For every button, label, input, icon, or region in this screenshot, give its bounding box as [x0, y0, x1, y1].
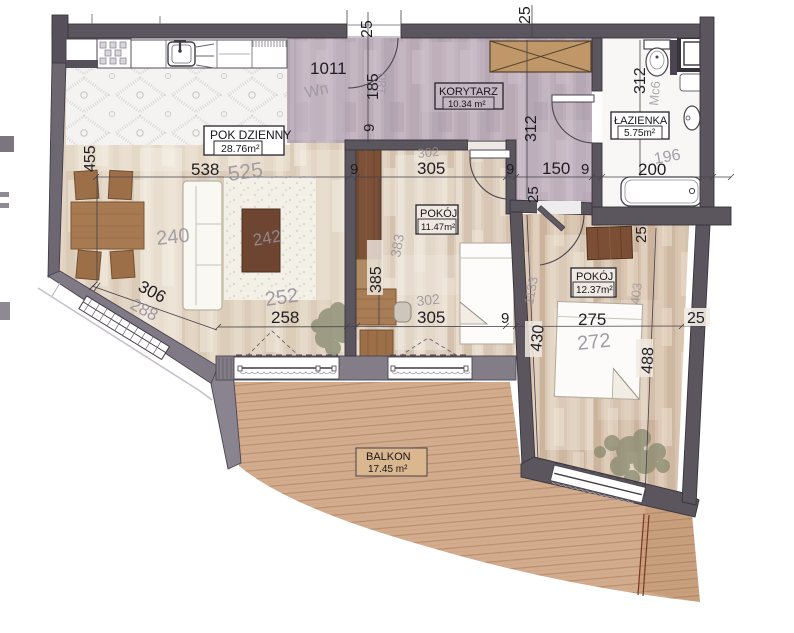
svg-text:17.45 m²: 17.45 m² — [368, 464, 408, 475]
svg-text:302: 302 — [416, 291, 441, 309]
svg-text:150: 150 — [542, 159, 570, 178]
svg-text:11.47m²: 11.47m² — [421, 222, 455, 233]
svg-text:POK DZIENNY: POK DZIENNY — [210, 128, 291, 142]
svg-text:25: 25 — [517, 6, 534, 24]
svg-text:POKÓJ: POKÓJ — [420, 207, 457, 220]
svg-text:272: 272 — [576, 330, 611, 355]
svg-text:10.34 m²: 10.34 m² — [448, 99, 486, 110]
svg-text:POKÓJ: POKÓJ — [576, 270, 613, 283]
svg-text:275: 275 — [578, 310, 606, 329]
svg-text:9: 9 — [350, 161, 358, 178]
svg-text:KORYTARZ: KORYTARZ — [439, 86, 498, 98]
svg-text:312: 312 — [523, 115, 540, 142]
svg-text:Mc6: Mc6 — [646, 80, 663, 106]
svg-text:305: 305 — [417, 308, 445, 327]
svg-text:9: 9 — [361, 124, 378, 132]
svg-text:525: 525 — [226, 158, 264, 186]
svg-text:385: 385 — [368, 266, 385, 293]
svg-text:430: 430 — [528, 324, 548, 352]
svg-text:9: 9 — [506, 161, 514, 178]
svg-text:ŁAZIENKA: ŁAZIENKA — [614, 115, 668, 127]
svg-text:9: 9 — [501, 310, 509, 327]
svg-text:12.37m²: 12.37m² — [576, 285, 613, 296]
svg-text:455: 455 — [82, 145, 99, 172]
svg-text:25: 25 — [525, 186, 542, 203]
svg-text:258: 258 — [271, 308, 299, 327]
svg-text:302: 302 — [417, 144, 440, 161]
svg-text:25: 25 — [359, 20, 376, 38]
svg-text:1011: 1011 — [310, 59, 347, 78]
svg-text:403: 403 — [627, 282, 645, 306]
svg-text:305: 305 — [417, 159, 445, 178]
svg-text:9: 9 — [581, 161, 589, 178]
svg-text:252: 252 — [264, 285, 300, 311]
svg-text:5.75m²: 5.75m² — [624, 128, 656, 139]
svg-text:25: 25 — [633, 226, 650, 243]
svg-text:BALKON: BALKON — [366, 451, 411, 463]
svg-text:180: 180 — [373, 72, 390, 95]
svg-text:240: 240 — [155, 225, 190, 250]
svg-text:538: 538 — [191, 160, 219, 179]
svg-text:25: 25 — [687, 310, 705, 327]
svg-text:488: 488 — [639, 347, 657, 375]
svg-text:28.76m²: 28.76m² — [221, 143, 260, 155]
